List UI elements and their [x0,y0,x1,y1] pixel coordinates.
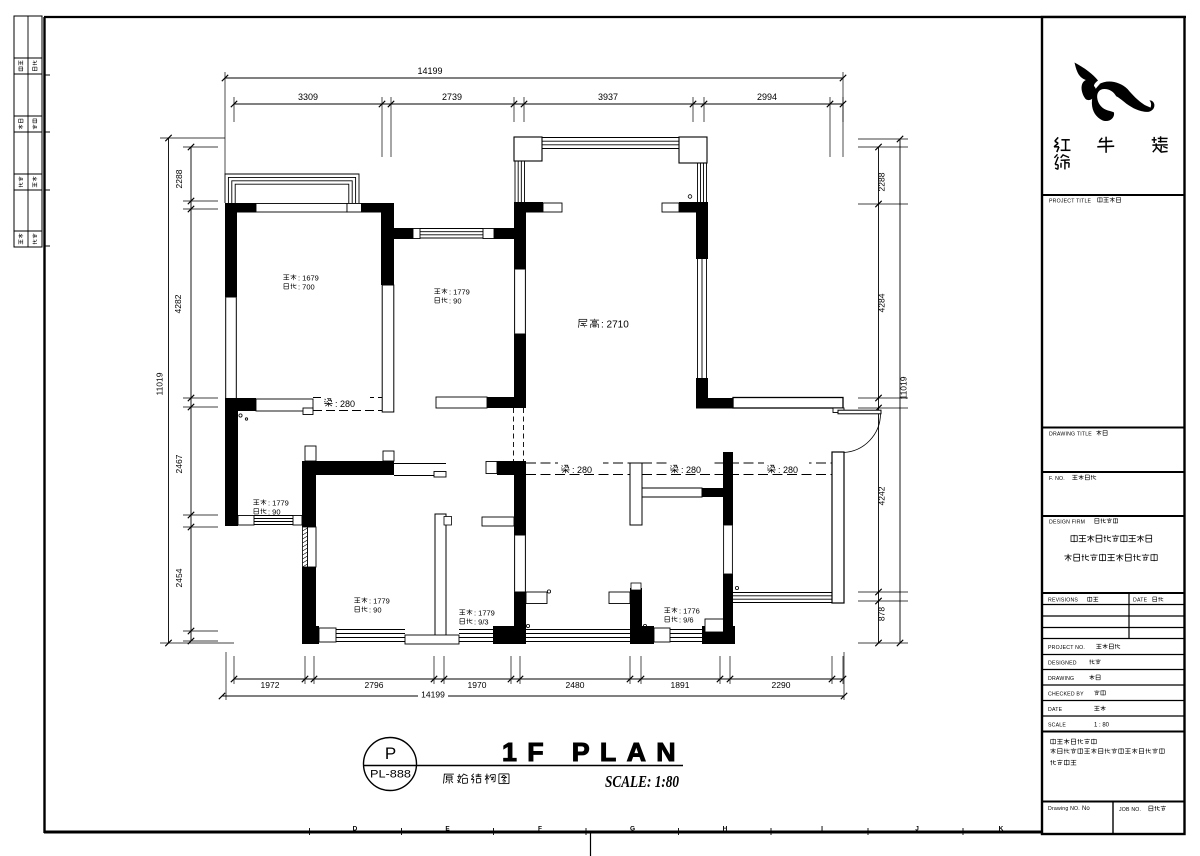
svg-text:PROJECT TITLE: PROJECT TITLE [1049,199,1092,205]
svg-text:: 1679: : 1679 [298,274,319,283]
svg-text:CHECKED BY: CHECKED BY [1048,692,1084,698]
svg-text:: 280: : 280 [778,465,798,475]
svg-text:878: 878 [877,607,887,621]
svg-text:No: No [1082,806,1090,812]
svg-text:1891: 1891 [671,680,690,690]
svg-text:PROJECT NO.: PROJECT NO. [1048,645,1085,651]
svg-text:: 1779: : 1779 [449,288,470,297]
svg-text:: 2710: : 2710 [601,320,629,331]
svg-text:2480: 2480 [566,680,585,690]
svg-text:2288: 2288 [174,169,184,188]
svg-text:: 280: : 280 [572,465,592,475]
svg-text:2467: 2467 [174,454,184,473]
svg-text:Drawing NO.: Drawing NO. [1048,806,1080,812]
svg-text:: 1779: : 1779 [369,597,390,606]
svg-text:11019: 11019 [155,372,165,395]
svg-text:1970: 1970 [468,680,487,690]
svg-text:DRAWING: DRAWING [1048,676,1074,682]
svg-text:1 : 80: 1 : 80 [1094,723,1110,729]
svg-text:14199: 14199 [421,690,445,700]
svg-text:SCALE: SCALE [1048,723,1066,729]
svg-text:2739: 2739 [442,92,462,102]
svg-text:: 9/6: : 9/6 [679,616,694,625]
svg-text:: 90: : 90 [449,297,462,306]
svg-text:2994: 2994 [757,92,777,102]
svg-text:DESIGN FIRM: DESIGN FIRM [1049,520,1085,526]
svg-text:P: P [385,744,396,763]
svg-text:I: I [821,826,823,833]
svg-text:DRAWING TITLE: DRAWING TITLE [1049,432,1092,438]
svg-text:: 1776: : 1776 [679,607,700,616]
svg-text:G: G [630,826,635,833]
svg-text:1F PLAN: 1F PLAN [502,737,686,767]
svg-text:11019: 11019 [899,376,909,399]
svg-text:14199: 14199 [417,66,442,76]
svg-text:: 9/3: : 9/3 [474,618,489,627]
svg-text:2454: 2454 [174,568,184,587]
svg-text:E: E [445,826,450,833]
svg-text:JOB NO.: JOB NO. [1119,807,1141,813]
svg-text:2290: 2290 [772,680,791,690]
svg-text:4242: 4242 [877,486,887,505]
svg-text:1972: 1972 [261,680,280,690]
svg-text:DESIGNED: DESIGNED [1048,661,1077,667]
svg-text:: 1779: : 1779 [474,609,495,618]
svg-text:SCALE: 1:80: SCALE: 1:80 [605,772,679,791]
svg-text:K: K [999,826,1004,833]
svg-text:2796: 2796 [365,680,384,690]
svg-text:: 280: : 280 [335,399,355,409]
svg-text:: 700: : 700 [298,283,315,292]
svg-text:J: J [915,826,919,833]
svg-text:2288: 2288 [877,172,887,191]
svg-text:: 280: : 280 [681,465,701,475]
svg-text:F: F [538,826,542,833]
svg-text:4282: 4282 [173,294,183,313]
svg-text:DATE: DATE [1133,598,1148,604]
svg-text:H: H [723,826,728,833]
svg-text:REVISIONS: REVISIONS [1048,598,1078,604]
svg-text:: 90: : 90 [268,508,281,517]
svg-text:D: D [353,826,358,833]
svg-text:DATE: DATE [1048,707,1063,713]
svg-text:3937: 3937 [598,92,618,102]
svg-text:3309: 3309 [298,92,318,102]
svg-text:: 90: : 90 [369,606,382,615]
svg-text:PL-888: PL-888 [370,769,411,781]
svg-text:F. NO.: F. NO. [1049,476,1065,482]
svg-text:: 1779: : 1779 [268,499,289,508]
svg-text:4284: 4284 [877,293,887,312]
